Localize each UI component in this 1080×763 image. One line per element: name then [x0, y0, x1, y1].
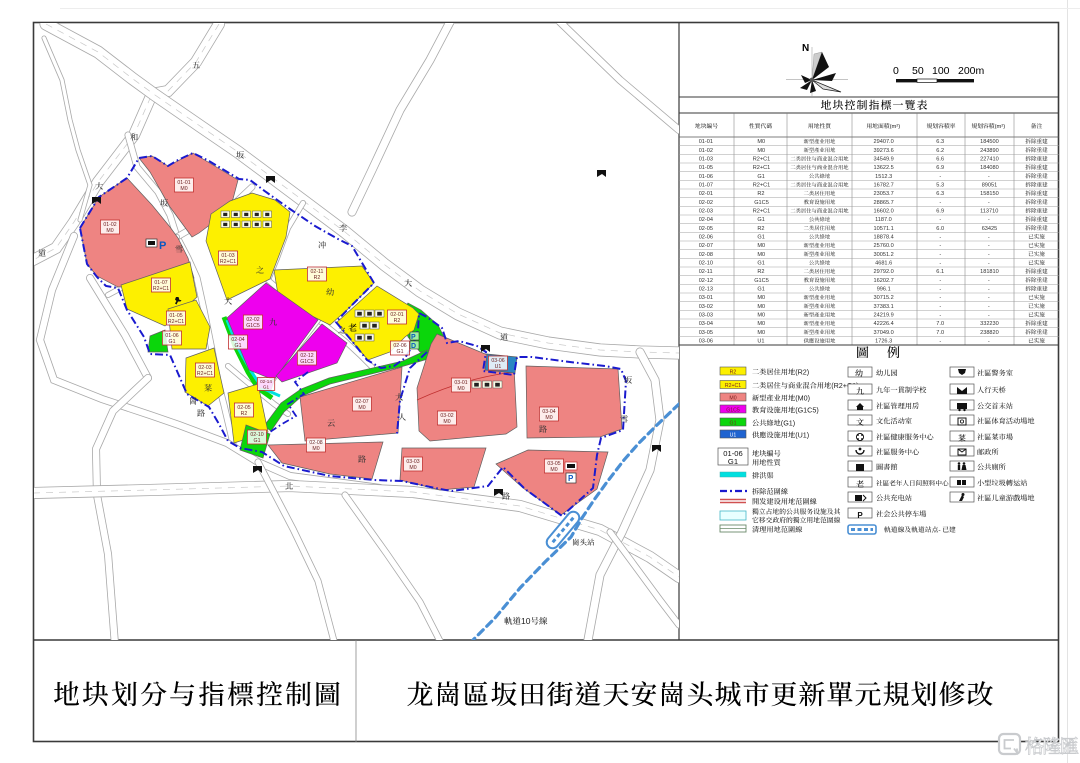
svg-text:M0: M0 — [757, 304, 765, 310]
svg-text:M0: M0 — [106, 228, 113, 234]
svg-text:02-07: 02-07 — [355, 399, 368, 405]
svg-text:227410: 227410 — [980, 157, 999, 163]
svg-text:39273.6: 39273.6 — [874, 148, 894, 154]
svg-text:01-06: 01-06 — [165, 333, 178, 339]
svg-text:02-02: 02-02 — [699, 200, 713, 206]
svg-text:03-03: 03-03 — [406, 459, 419, 465]
svg-text:02-01: 02-01 — [390, 312, 403, 318]
svg-text:-: - — [988, 313, 990, 319]
svg-text:(G1): (G1) — [781, 419, 795, 428]
svg-text:02-04: 02-04 — [699, 217, 713, 223]
svg-text:M0: M0 — [757, 313, 765, 319]
svg-text:M0: M0 — [729, 396, 736, 402]
svg-text:02-11: 02-11 — [311, 269, 324, 275]
svg-text:01-06: 01-06 — [699, 174, 713, 180]
svg-text:G1C5: G1C5 — [246, 323, 260, 329]
svg-text:G1C5: G1C5 — [300, 359, 314, 365]
svg-text:G1: G1 — [235, 343, 242, 349]
svg-text:37383.1: 37383.1 — [874, 304, 894, 310]
svg-text:1512.3: 1512.3 — [875, 174, 892, 180]
svg-text:-: - — [988, 278, 990, 284]
svg-text:(U1): (U1) — [795, 431, 809, 440]
svg-text:U1: U1 — [757, 339, 764, 345]
svg-text:-: - — [939, 200, 941, 206]
svg-text:(M0): (M0) — [795, 394, 810, 403]
svg-text:-: - — [939, 243, 941, 249]
svg-text:-: - — [988, 339, 990, 345]
svg-text:01-01: 01-01 — [699, 139, 713, 145]
svg-text:G1: G1 — [169, 339, 176, 345]
svg-text:02-01: 02-01 — [699, 191, 713, 197]
svg-text:G1: G1 — [254, 438, 261, 444]
svg-text:37049.0: 37049.0 — [874, 330, 894, 336]
svg-text:R2+C1: R2+C1 — [753, 165, 771, 171]
svg-text:25760.0: 25760.0 — [874, 243, 894, 249]
svg-text:03-05: 03-05 — [699, 330, 713, 336]
svg-text:4681.6: 4681.6 — [875, 261, 892, 267]
svg-text:02-12: 02-12 — [300, 353, 313, 359]
svg-text:181810: 181810 — [980, 269, 999, 275]
svg-text:332230: 332230 — [980, 321, 999, 327]
svg-text:-: - — [939, 217, 941, 223]
svg-text:-: - — [939, 261, 941, 267]
svg-text:M0: M0 — [312, 446, 319, 452]
svg-text:0: 0 — [893, 65, 899, 77]
svg-text:M0: M0 — [358, 405, 365, 411]
svg-text:R2: R2 — [730, 370, 737, 376]
svg-text:6.3: 6.3 — [936, 191, 944, 197]
svg-text:M0: M0 — [457, 386, 464, 392]
svg-text:M0: M0 — [757, 330, 765, 336]
svg-text:02-06: 02-06 — [393, 343, 406, 349]
svg-text:184080: 184080 — [980, 165, 999, 171]
svg-text:6.2: 6.2 — [936, 148, 944, 154]
svg-text:-: - — [988, 295, 990, 301]
svg-text:R2+C1: R2+C1 — [220, 259, 236, 265]
svg-text:-: - — [988, 174, 990, 180]
svg-text:03-01: 03-01 — [699, 295, 713, 301]
svg-text:M0: M0 — [757, 243, 765, 249]
svg-text:G1: G1 — [730, 421, 737, 427]
svg-text:02-03: 02-03 — [699, 209, 713, 215]
svg-text:10: 10 — [521, 616, 531, 626]
svg-text:24219.9: 24219.9 — [874, 313, 894, 319]
svg-text:02-02: 02-02 — [246, 317, 259, 323]
svg-text:02-05: 02-05 — [237, 405, 250, 411]
svg-text:R2: R2 — [314, 275, 321, 281]
svg-text:-: - — [988, 261, 990, 267]
svg-text:6.9: 6.9 — [936, 209, 944, 215]
svg-text:02-12: 02-12 — [699, 278, 713, 284]
svg-text:G1C5: G1C5 — [726, 408, 740, 414]
svg-text:G1: G1 — [757, 261, 764, 267]
svg-text:02-10: 02-10 — [699, 261, 713, 267]
svg-text:6.9: 6.9 — [936, 165, 944, 171]
svg-text:02-06: 02-06 — [699, 235, 713, 241]
svg-text:02-11: 02-11 — [699, 269, 713, 275]
svg-text:-: - — [938, 527, 940, 534]
svg-text:R2+C1: R2+C1 — [197, 371, 213, 377]
svg-text:16782.7: 16782.7 — [874, 183, 894, 189]
svg-text:G1: G1 — [757, 235, 764, 241]
svg-text:03-06: 03-06 — [491, 358, 504, 364]
svg-text:02-13: 02-13 — [699, 287, 713, 293]
svg-text:-: - — [988, 235, 990, 241]
svg-text:03-03: 03-03 — [699, 313, 713, 319]
svg-text:184500: 184500 — [980, 139, 999, 145]
svg-text:R2+C1: R2+C1 — [725, 383, 741, 389]
svg-text:R2+C1: R2+C1 — [168, 319, 184, 325]
svg-text:01-07: 01-07 — [699, 183, 713, 189]
svg-text:200m: 200m — [958, 65, 985, 77]
svg-text:18878.4: 18878.4 — [874, 235, 894, 241]
svg-text:6.1: 6.1 — [936, 269, 944, 275]
svg-text:M0: M0 — [180, 186, 187, 192]
svg-text:R2: R2 — [757, 226, 764, 232]
svg-text:30715.2: 30715.2 — [874, 295, 894, 301]
svg-text:1187.0: 1187.0 — [875, 217, 892, 223]
svg-text:M0: M0 — [757, 295, 765, 301]
svg-text:-: - — [988, 243, 990, 249]
svg-text:M0: M0 — [757, 139, 765, 145]
svg-text:G1: G1 — [728, 457, 738, 466]
svg-text:U1: U1 — [495, 364, 502, 370]
svg-text:G1: G1 — [757, 217, 764, 223]
svg-text:M0: M0 — [545, 415, 552, 421]
svg-text:6.6: 6.6 — [936, 157, 944, 163]
svg-text:01-02: 01-02 — [699, 148, 713, 154]
svg-text:02-04: 02-04 — [231, 337, 244, 343]
svg-text:R2: R2 — [394, 318, 401, 324]
svg-text:(m²): (m²) — [890, 124, 901, 130]
svg-text:R2+C1: R2+C1 — [753, 183, 771, 189]
svg-text:-: - — [988, 217, 990, 223]
svg-text:P: P — [857, 511, 863, 520]
svg-text:M0: M0 — [757, 252, 765, 258]
svg-text:03-02: 03-02 — [699, 304, 713, 310]
svg-text:6.3: 6.3 — [936, 139, 944, 145]
svg-text:D: D — [411, 343, 416, 350]
svg-text:R2+C1: R2+C1 — [753, 209, 771, 215]
svg-text:(G1C5): (G1C5) — [795, 406, 819, 415]
svg-text:28865.7: 28865.7 — [874, 200, 894, 206]
svg-text:02-14: 02-14 — [260, 379, 272, 384]
svg-text:-: - — [939, 339, 941, 345]
svg-text:(R2): (R2) — [795, 368, 809, 377]
svg-text:89051: 89051 — [982, 183, 998, 189]
svg-text:03-05: 03-05 — [547, 461, 560, 467]
svg-text:238820: 238820 — [980, 330, 999, 336]
svg-text:01-05: 01-05 — [169, 313, 182, 319]
svg-text:-: - — [939, 252, 941, 258]
svg-text:G1C5: G1C5 — [754, 278, 769, 284]
svg-text:7.0: 7.0 — [936, 330, 944, 336]
svg-text:5.3: 5.3 — [936, 183, 944, 189]
svg-text:7.0: 7.0 — [936, 321, 944, 327]
svg-text:G1: G1 — [757, 174, 764, 180]
svg-text:P: P — [159, 240, 166, 252]
svg-text:03-02: 03-02 — [440, 413, 453, 419]
svg-text:-: - — [939, 235, 941, 241]
svg-text:-: - — [939, 304, 941, 310]
svg-text:G1: G1 — [757, 287, 764, 293]
svg-text:16602.0: 16602.0 — [874, 209, 894, 215]
svg-text:-: - — [939, 313, 941, 319]
svg-text:34549.9: 34549.9 — [874, 157, 894, 163]
svg-text:(m²): (m²) — [995, 124, 1006, 130]
svg-text:-: - — [939, 287, 941, 293]
svg-text:01-03: 01-03 — [699, 157, 713, 163]
svg-text:G1C5: G1C5 — [754, 200, 769, 206]
svg-text:P: P — [568, 474, 574, 483]
svg-text:-: - — [988, 200, 990, 206]
svg-text:63425: 63425 — [982, 226, 998, 232]
svg-text:R2+C1: R2+C1 — [153, 286, 169, 292]
svg-text:02-07: 02-07 — [699, 243, 713, 249]
svg-text:50: 50 — [912, 65, 924, 77]
svg-text:01-07: 01-07 — [154, 280, 167, 286]
svg-text:13622.5: 13622.5 — [874, 165, 894, 171]
svg-text:M0: M0 — [757, 321, 765, 327]
svg-text:01-03: 01-03 — [221, 253, 234, 259]
svg-text:-: - — [988, 287, 990, 293]
svg-text:03-06: 03-06 — [699, 339, 713, 345]
svg-text:P: P — [411, 334, 416, 341]
svg-text:02-10: 02-10 — [250, 432, 263, 438]
svg-text:03-01: 03-01 — [454, 380, 467, 386]
svg-text:-: - — [988, 252, 990, 258]
svg-text:-: - — [939, 278, 941, 284]
svg-text:158150: 158150 — [980, 191, 999, 197]
svg-text:03-04: 03-04 — [699, 321, 713, 327]
svg-text:01-01: 01-01 — [177, 180, 190, 186]
svg-text:M0: M0 — [550, 467, 557, 473]
svg-text:100: 100 — [932, 65, 950, 77]
svg-text:10571.1: 10571.1 — [874, 226, 894, 232]
svg-text:01-05: 01-05 — [699, 165, 713, 171]
svg-text:U1: U1 — [730, 433, 737, 439]
svg-text:M0: M0 — [757, 148, 765, 154]
svg-text:-: - — [939, 295, 941, 301]
svg-text:-: - — [939, 174, 941, 180]
svg-text:01-02: 01-02 — [103, 222, 116, 228]
svg-text:R2: R2 — [757, 191, 764, 197]
svg-text:30051.2: 30051.2 — [874, 252, 894, 258]
svg-text:G1: G1 — [397, 349, 404, 355]
svg-text:02-08: 02-08 — [699, 252, 713, 258]
svg-text:R2: R2 — [757, 269, 764, 275]
svg-text:02-08: 02-08 — [309, 440, 322, 446]
svg-text:02-05: 02-05 — [699, 226, 713, 232]
svg-text:03-04: 03-04 — [542, 409, 555, 415]
svg-text:6.0: 6.0 — [936, 226, 944, 232]
svg-text:243890: 243890 — [980, 148, 999, 154]
svg-text:113710: 113710 — [980, 209, 998, 215]
svg-text:R2: R2 — [241, 411, 248, 417]
svg-text:-: - — [988, 304, 990, 310]
svg-text:M0: M0 — [409, 465, 416, 471]
svg-text:29792.0: 29792.0 — [874, 269, 894, 275]
svg-text:1726.3: 1726.3 — [875, 339, 892, 345]
svg-text:42226.4: 42226.4 — [874, 321, 894, 327]
svg-text:02-03: 02-03 — [198, 365, 211, 371]
svg-text:R2+C1: R2+C1 — [753, 157, 771, 163]
svg-text:23053.7: 23053.7 — [874, 191, 894, 197]
svg-text:N: N — [802, 43, 809, 54]
svg-text:G1: G1 — [263, 385, 270, 390]
svg-text:29407.0: 29407.0 — [874, 139, 894, 145]
svg-text:M0: M0 — [443, 419, 450, 425]
svg-text:996.1: 996.1 — [877, 287, 891, 293]
svg-text:16202.7: 16202.7 — [874, 278, 894, 284]
